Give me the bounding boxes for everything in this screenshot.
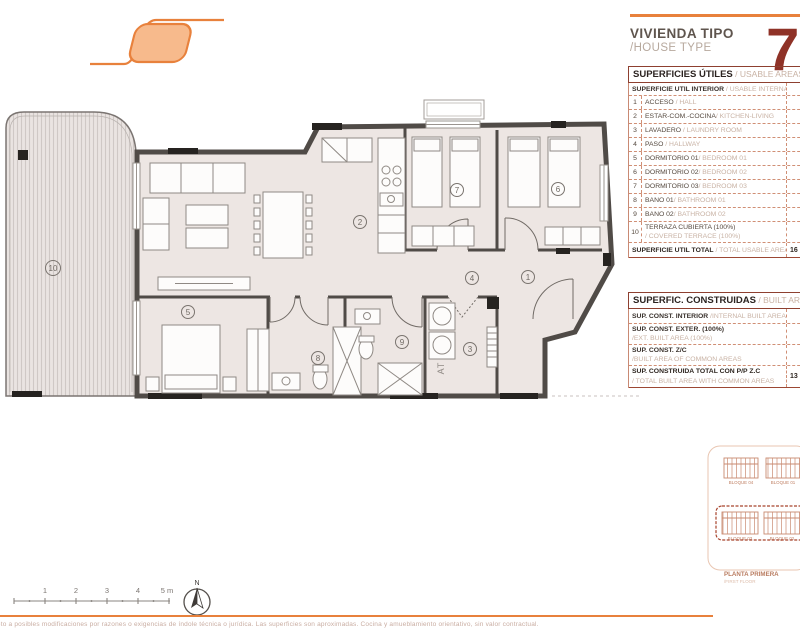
svg-text:3: 3 [468,345,473,354]
usable-row-5: 5DORMITORIO 01/ BEDROOM 01 [629,152,800,166]
floor-label-es: PLANTA PRIMERA [724,571,779,578]
floor-label-en: /FIRST FLOOR [724,579,756,584]
svg-text:5: 5 [186,308,191,317]
usable-row-8: 8BAÑO 01/ BATHROOM 01 [629,194,800,208]
usable-row-3: 3LAVADERO / LAUNDRY ROOM [629,124,800,138]
svg-text:5 m: 5 m [161,586,174,595]
floor-plan: AT 1 2 3 4 5 6 7 8 9 10 [0,75,640,475]
usable-total-row: SUPERFICIE ÚTIL TOTAL / TOTAL USABLE ARE… [629,243,800,258]
svg-text:8: 8 [316,354,321,363]
usable-row-6: 6DORMITORIO 02/ BEDROOM 02 [629,166,800,180]
block-label-01: BLOQUE 01 [771,480,796,485]
developer-logo [88,12,228,74]
brochure-page: VIVIENDA TIPO /HOUSE TYPE 7 SUPERFICIES … [0,0,800,640]
built-areas-table: SUPERFIC. CONSTRUIDAS / BUILT AREAS SUP.… [628,292,800,388]
svg-text:6: 6 [556,185,561,194]
usable-areas-table: SUPERFICIES ÚTILES / USABLE AREAS SUPERF… [628,66,800,258]
usable-row-2: 2ESTAR-COM.-COCINA/ KITCHEN-LIVING [629,110,800,124]
usable-table-body: SUPERFICIE ÚTIL INTERIOR / USABLE INTERN… [628,83,800,258]
built-title-en: / BUILT AREAS [756,295,800,305]
usable-row-7: 7DORMITORIO 03/ BEDROOM 03 [629,180,800,194]
usable-row-4: 4PASO / HALLWAY [629,138,800,152]
svg-text:10: 10 [49,264,58,273]
scale-bar [14,598,170,604]
usable-title-en: / USABLE AREAS [733,69,800,79]
usable-row-9: 9BAÑO 02/ BATHROOM 02 [629,208,800,222]
block-label-04: BLOQUE 04 [729,480,754,485]
svg-text:3: 3 [105,586,109,595]
built-table-header: SUPERFIC. CONSTRUIDAS / BUILT AREAS [628,292,800,309]
svg-text:9: 9 [400,338,405,347]
block-strips [722,458,800,534]
page-subtitle: /HOUSE TYPE [630,42,734,54]
bedroom-01-furniture [146,325,269,393]
svg-text:2: 2 [358,218,363,227]
svg-text:7: 7 [455,186,460,195]
svg-text:1: 1 [526,273,531,282]
key-plan: BLOQUE 04 BLOQUE 01 BLOQUE 03 BLOQUE 02 … [700,438,800,598]
usable-subheader-row: SUPERFICIE ÚTIL INTERIOR / USABLE INTERN… [629,83,800,96]
north-label: N [194,580,199,587]
legal-disclaimer: sujeto a posibles modificaciones por raz… [0,621,800,628]
svg-text:2: 2 [74,586,78,595]
scale-and-compass: 1 2 3 4 5 m N [0,575,230,615]
page-title: VIVIENDA TIPO [630,26,734,41]
usable-row-10: 10TERRAZA CUBIERTA (100%)/ COVERED TERRA… [629,222,800,243]
scale-labels: 1 2 3 4 5 m [43,586,173,595]
footer-orange-rule [0,615,713,617]
built-table-body: SUP. CONST. INTERIOR /INTERNAL BUILT ARE… [628,309,800,388]
built-total-row: SUP. CONSTRUIDA TOTAL CON P/P Z.C/ TOTAL… [629,366,800,388]
north-compass: N [184,580,210,615]
logo-blob [128,24,193,62]
built-row-1: SUP. CONST. INTERIOR /INTERNAL BUILT ARE… [629,309,800,324]
balcony [424,100,484,119]
svg-text:4: 4 [136,586,140,595]
usable-table-header: SUPERFICIES ÚTILES / USABLE AREAS [628,66,800,83]
header-block: VIVIENDA TIPO /HOUSE TYPE [630,26,734,54]
usable-title-es: SUPERFICIES ÚTILES [633,69,733,80]
usable-row-1: 1ACCESO / HALL [629,96,800,110]
laundry-at-label: AT [436,362,446,375]
built-row-3: SUP. CONST. Z/C/BUILT AREA OF COMMON ARE… [629,345,800,366]
built-title-es: SUPERFIC. CONSTRUIDAS [633,295,756,306]
svg-text:1: 1 [43,586,47,595]
built-row-2: SUP. CONST. EXTER. (100%)/EXT. BUILT ARE… [629,324,800,345]
svg-text:4: 4 [470,274,475,283]
